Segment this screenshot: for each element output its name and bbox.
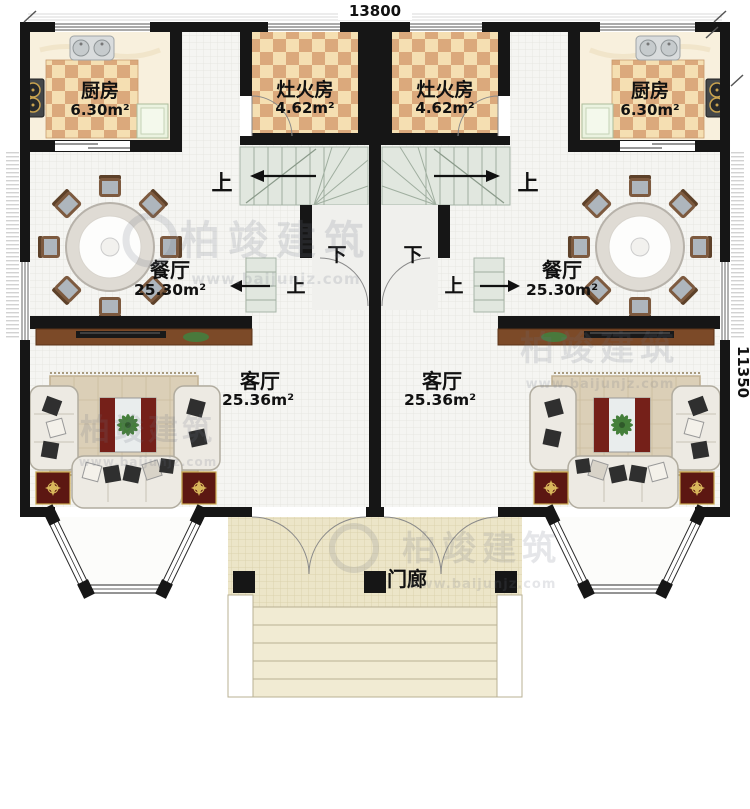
watermark: 柏竣建筑 www.baijunjz.com	[79, 413, 218, 469]
svg-text:厨房: 厨房	[81, 79, 119, 102]
title-block: 一层平面图1:100 本层建筑面积：139.84m² 本栋建筑面积：541.94…	[0, 700, 750, 809]
svg-text:客厅: 客厅	[239, 369, 280, 393]
svg-text:www.baijunjz.com: www.baijunjz.com	[526, 377, 675, 392]
watermark: 柏竣建筑 www.baijunjz.com	[520, 329, 680, 392]
stair-up-label: 上	[518, 171, 539, 195]
stair-down-label: 下	[403, 244, 422, 266]
svg-text:www.baijunjz.com: www.baijunjz.com	[408, 577, 557, 592]
svg-text:灶火房: 灶火房	[276, 78, 333, 101]
stair-up-label: 上	[444, 275, 463, 297]
svg-text:4.62m²: 4.62m²	[415, 99, 474, 117]
height-dimension: 11350	[734, 346, 750, 398]
floor-plan-drawing: 厨房 6.30m² 厨房 6.30m² 灶火房 4.62m² 灶火房 4.62m…	[0, 0, 750, 700]
width-dimension: 13800	[349, 2, 401, 20]
svg-text:餐厅: 餐厅	[542, 258, 582, 282]
svg-text:客厅: 客厅	[421, 369, 462, 393]
unit-left	[6, 22, 386, 697]
svg-text:25.36m²: 25.36m²	[222, 391, 294, 409]
svg-text:柏竣建筑: 柏竣建筑	[402, 529, 562, 569]
svg-text:灶火房: 灶火房	[416, 78, 473, 101]
svg-text:www.baijunjz.com: www.baijunjz.com	[191, 270, 360, 288]
svg-text:25.30m²: 25.30m²	[526, 281, 598, 299]
svg-text:25.36m²: 25.36m²	[404, 391, 476, 409]
stove-room-left-label: 灶火房 4.62m²	[275, 78, 334, 117]
svg-text:6.30m²: 6.30m²	[70, 101, 129, 119]
svg-text:6.30m²: 6.30m²	[620, 101, 679, 119]
stove-room-right-label: 灶火房 4.62m²	[415, 78, 474, 117]
floor-plan-page: 厨房 6.30m² 厨房 6.30m² 灶火房 4.62m² 灶火房 4.62m…	[0, 0, 750, 809]
svg-text:厨房: 厨房	[631, 79, 669, 102]
svg-text:柏竣建筑: 柏竣建筑	[180, 218, 372, 264]
svg-text:4.62m²: 4.62m²	[275, 99, 334, 117]
svg-text:柏竣建筑: 柏竣建筑	[520, 329, 680, 369]
stair-up-label: 上	[212, 171, 233, 195]
svg-text:www.baijunjz.com: www.baijunjz.com	[79, 455, 218, 469]
svg-text:柏竣建筑: 柏竣建筑	[80, 413, 216, 448]
